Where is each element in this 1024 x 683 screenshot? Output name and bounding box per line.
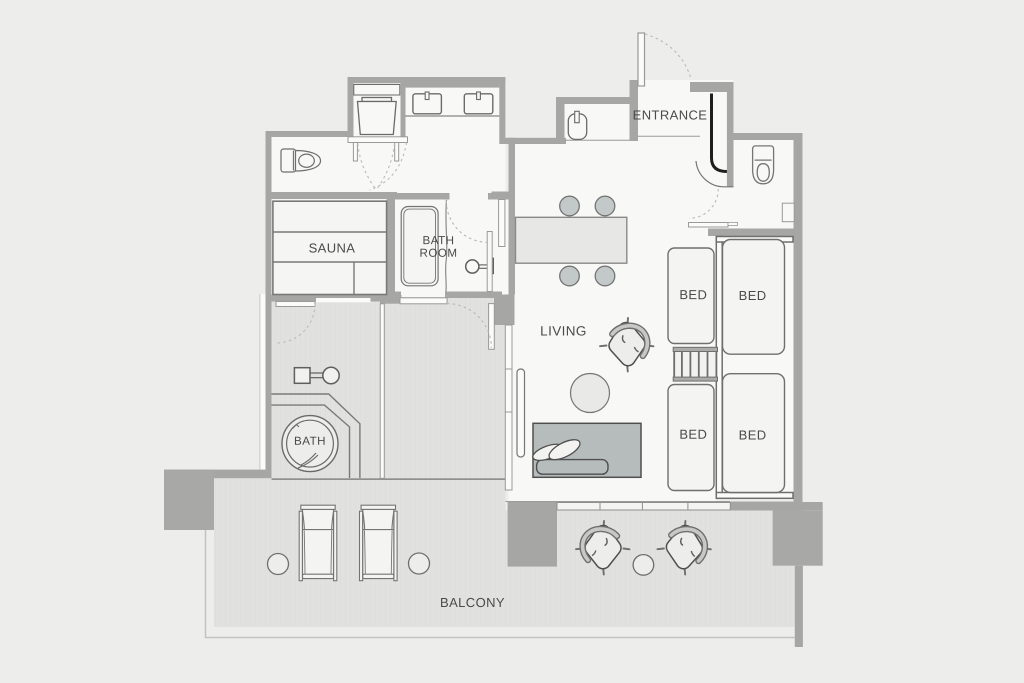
svg-text:ROOM: ROOM <box>419 247 457 260</box>
svg-text:SAUNA: SAUNA <box>309 240 356 255</box>
svg-text:BED: BED <box>739 427 767 442</box>
svg-text:BED: BED <box>739 288 767 303</box>
svg-text:BATH: BATH <box>294 435 326 448</box>
svg-text:BED: BED <box>679 287 707 302</box>
svg-text:BED: BED <box>679 427 707 442</box>
svg-text:BATH: BATH <box>422 234 454 247</box>
svg-text:LIVING: LIVING <box>540 323 587 338</box>
svg-text:ENTRANCE: ENTRANCE <box>633 107 708 122</box>
svg-text:BALCONY: BALCONY <box>440 595 505 610</box>
